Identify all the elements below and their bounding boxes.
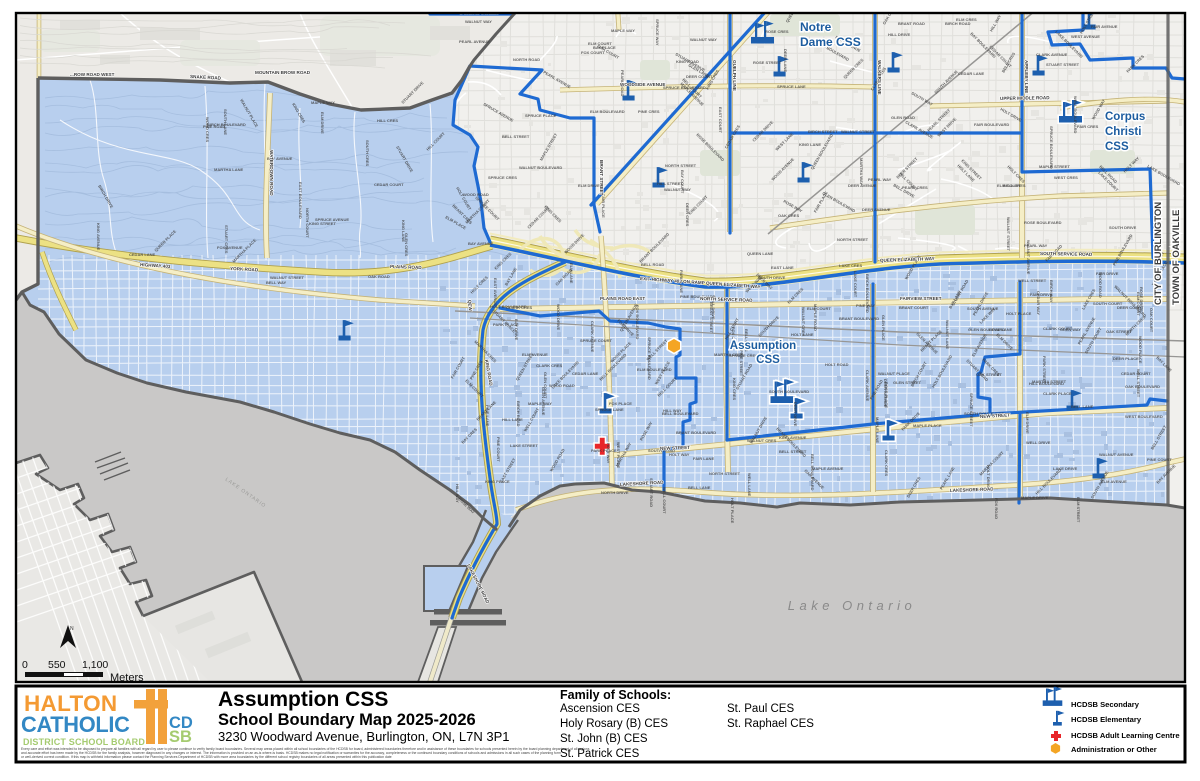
svg-text:NORTH STREET: NORTH STREET <box>837 237 869 242</box>
svg-text:St. John (B) CES: St. John (B) CES <box>560 733 648 745</box>
svg-text:HOLT PLACE: HOLT PLACE <box>730 498 735 524</box>
svg-text:EAST COURT: EAST COURT <box>718 107 723 134</box>
svg-text:TOWN OF OAKVILLE: TOWN OF OAKVILLE <box>1171 210 1182 305</box>
svg-text:ELM AVENUE: ELM AVENUE <box>522 352 548 357</box>
svg-text:NORTH COURT: NORTH COURT <box>305 208 310 238</box>
svg-text:FAIRVIEW STREET: FAIRVIEW STREET <box>900 296 942 301</box>
svg-text:Family of Schools:: Family of Schools: <box>560 688 671 702</box>
svg-text:WALNUT BOULEVARD: WALNUT BOULEVARD <box>519 165 562 170</box>
svg-text:SPRUCE WAY: SPRUCE WAY <box>655 19 660 46</box>
svg-text:NORTH ROAD: NORTH ROAD <box>513 57 540 62</box>
svg-text:HILL WAY: HILL WAY <box>663 408 682 413</box>
svg-text:NORTH STREET: NORTH STREET <box>709 471 741 476</box>
svg-text:HILL CRES: HILL CRES <box>377 118 398 123</box>
svg-text:PINE LANE: PINE LANE <box>485 405 490 427</box>
svg-text:BELL STREET: BELL STREET <box>779 449 807 454</box>
svg-text:OAK CRES: OAK CRES <box>778 213 799 218</box>
svg-text:WOODSIDE AVENUE: WOODSIDE AVENUE <box>620 82 665 87</box>
svg-text:ELM CRES: ELM CRES <box>956 17 977 22</box>
svg-text:N: N <box>70 626 74 632</box>
svg-text:BELL WAY: BELL WAY <box>266 280 287 285</box>
svg-text:Notre: Notre <box>800 20 832 34</box>
svg-text:ELM DRIVE: ELM DRIVE <box>320 112 325 134</box>
svg-text:CLARK CRES: CLARK CRES <box>884 450 889 477</box>
svg-text:CSS: CSS <box>1105 141 1129 153</box>
svg-text:CATHOLIC: CATHOLIC <box>21 712 130 737</box>
svg-text:St. Paul CES: St. Paul CES <box>727 703 794 715</box>
svg-text:WELL STREET: WELL STREET <box>1018 278 1047 283</box>
svg-text:ELM DRIVE: ELM DRIVE <box>1025 412 1030 434</box>
svg-text:WALNUT STREET: WALNUT STREET <box>841 129 876 134</box>
svg-text:WALNUT WAY: WALNUT WAY <box>465 19 492 24</box>
svg-text:WOOD DRIVE: WOOD DRIVE <box>556 304 561 331</box>
svg-text:School Boundary Map 2025-2026: School Boundary Map 2025-2026 <box>218 711 476 729</box>
svg-text:FOX COURT: FOX COURT <box>581 50 605 55</box>
svg-text:PINE COURT: PINE COURT <box>496 437 501 462</box>
svg-text:FAIR PLACE: FAIR PLACE <box>601 194 606 218</box>
svg-text:BIRCH ROAD: BIRCH ROAD <box>516 401 521 427</box>
svg-text:CEDAR LANE: CEDAR LANE <box>129 252 156 257</box>
svg-text:WALNUT LANE: WALNUT LANE <box>945 320 950 349</box>
svg-text:KING LANE: KING LANE <box>799 142 821 147</box>
svg-text:DEER AVENUE: DEER AVENUE <box>848 183 877 188</box>
svg-text:St. Patrick CES: St. Patrick CES <box>560 748 640 760</box>
svg-text:MOUNTAIN BROW ROAD: MOUNTAIN BROW ROAD <box>255 70 311 75</box>
svg-text:WOOD CRES: WOOD CRES <box>205 117 210 142</box>
svg-text:NEW STREET: NEW STREET <box>660 445 690 451</box>
svg-text:MAPLE DRIVE: MAPLE DRIVE <box>1021 495 1049 500</box>
svg-text:HILL STREET: HILL STREET <box>657 181 683 186</box>
svg-text:Assumption CSS: Assumption CSS <box>218 688 388 711</box>
svg-text:GLEN PLACE: GLEN PLACE <box>881 315 886 341</box>
svg-text:Assumption: Assumption <box>730 340 796 352</box>
svg-text:Ascension CES: Ascension CES <box>560 703 640 715</box>
svg-text:LAKE DRIVE: LAKE DRIVE <box>1053 466 1078 471</box>
svg-text:EAST BOULEVARD: EAST BOULEVARD <box>298 182 303 219</box>
svg-text:HOLT PLACE: HOLT PLACE <box>1006 311 1032 316</box>
svg-text:NORTH STREET: NORTH STREET <box>665 163 697 168</box>
svg-text:PINE COURT: PINE COURT <box>1147 457 1172 462</box>
svg-text:FAIR BOULEVARD: FAIR BOULEVARD <box>974 122 1009 127</box>
svg-text:HOLT WAY: HOLT WAY <box>606 443 611 464</box>
svg-text:PINE CRES: PINE CRES <box>638 109 660 114</box>
svg-text:DEER LANE: DEER LANE <box>783 49 788 72</box>
svg-text:WALNUT AVENUE: WALNUT AVENUE <box>1026 240 1031 275</box>
svg-text:WELL LANE: WELL LANE <box>747 473 752 497</box>
svg-text:KING LANE: KING LANE <box>401 220 406 242</box>
svg-text:WALNUT WAY: WALNUT WAY <box>664 187 691 192</box>
svg-text:ELM BOULEVARD: ELM BOULEVARD <box>590 109 625 114</box>
svg-text:SOUTH BOULEVARD: SOUTH BOULEVARD <box>769 389 809 394</box>
svg-text:ELM DRIVE: ELM DRIVE <box>578 183 600 188</box>
svg-text:SB: SB <box>169 728 192 746</box>
svg-text:SPRUCE PLACE: SPRUCE PLACE <box>525 113 557 118</box>
svg-text:FAIR LANE: FAIR LANE <box>693 456 714 461</box>
svg-text:SPRUCE AVENUE: SPRUCE AVENUE <box>315 217 349 222</box>
svg-text:SPRUCE BOULEVARD: SPRUCE BOULEVARD <box>647 337 652 380</box>
svg-text:EAST AVENUE: EAST AVENUE <box>493 278 498 306</box>
svg-text:CEDAR LANE: CEDAR LANE <box>958 71 985 76</box>
svg-text:BAY AVENUE: BAY AVENUE <box>468 241 494 246</box>
svg-text:WALKERS LINE: WALKERS LINE <box>877 60 882 95</box>
svg-text:WATERDOWN ROAD: WATERDOWN ROAD <box>269 150 274 196</box>
svg-text:FAIR AVENUE: FAIR AVENUE <box>1091 24 1118 29</box>
svg-text:ROSE PLACE: ROSE PLACE <box>884 382 889 408</box>
svg-text:...ROW ROAD WEST: ...ROW ROAD WEST <box>70 72 115 77</box>
svg-text:STUART CRES: STUART CRES <box>224 225 229 254</box>
svg-text:DEER CRES: DEER CRES <box>685 203 690 227</box>
svg-text:SPRUCE COURT: SPRUCE COURT <box>580 338 613 343</box>
svg-text:Christi: Christi <box>1105 126 1141 138</box>
svg-text:LAKE COURT: LAKE COURT <box>853 271 858 298</box>
svg-text:NORTH DRIVE: NORTH DRIVE <box>601 490 629 495</box>
svg-text:ROSE LANE: ROSE LANE <box>989 327 1013 332</box>
svg-text:ROSE STREET: ROSE STREET <box>753 60 782 65</box>
svg-text:WALNUT STREET: WALNUT STREET <box>1006 217 1011 252</box>
svg-text:WOOD PLACE: WOOD PLACE <box>1138 336 1143 364</box>
svg-text:UPPER MIDDLE ROAD: UPPER MIDDLE ROAD <box>1000 95 1050 101</box>
svg-text:MAPLE PLACE: MAPLE PLACE <box>913 423 942 428</box>
svg-text:Dame CSS: Dame CSS <box>800 35 861 49</box>
svg-text:KING AVENUE: KING AVENUE <box>96 223 101 251</box>
svg-text:MAPLE WAY: MAPLE WAY <box>611 28 635 33</box>
svg-text:Corpus: Corpus <box>1105 111 1145 123</box>
svg-text:St. Raphael CES: St. Raphael CES <box>727 718 814 730</box>
svg-text:or well-derived correct condit: or well-derived correct condition. If th… <box>21 755 392 759</box>
svg-text:ELM COURT: ELM COURT <box>1136 292 1141 316</box>
svg-text:SPRUCE CRES: SPRUCE CRES <box>488 175 517 180</box>
svg-text:WELL DRIVE: WELL DRIVE <box>1026 440 1051 445</box>
svg-text:SOUTH CRES: SOUTH CRES <box>365 140 370 167</box>
svg-text:Administration or Other: Administration or Other <box>1071 745 1157 754</box>
svg-text:PEARL AVENUE: PEARL AVENUE <box>459 39 490 44</box>
svg-text:MAPLE WAY: MAPLE WAY <box>311 100 335 105</box>
svg-text:WALNUT AVENUE: WALNUT AVENUE <box>1099 452 1134 457</box>
svg-text:ROSE BOULEVARD: ROSE BOULEVARD <box>1024 220 1062 225</box>
svg-text:MARTHA STREET: MARTHA STREET <box>1032 379 1067 384</box>
svg-text:BIRCH WAY: BIRCH WAY <box>1049 280 1054 303</box>
svg-text:CLARK AVENUE: CLARK AVENUE <box>590 321 595 353</box>
svg-text:HOLT ROAD: HOLT ROAD <box>825 362 849 367</box>
svg-text:LAKE STREET: LAKE STREET <box>510 443 538 448</box>
svg-text:550: 550 <box>48 659 66 671</box>
svg-text:CEDAR LANE: CEDAR LANE <box>572 371 599 376</box>
svg-text:0: 0 <box>22 659 28 671</box>
svg-text:SOUTH DRIVE: SOUTH DRIVE <box>1109 225 1137 230</box>
svg-text:ELM STREET: ELM STREET <box>1076 497 1081 523</box>
svg-text:HCDSB Secondary: HCDSB Secondary <box>1071 700 1140 709</box>
svg-text:DISTRICT SCHOOL BOARD: DISTRICT SCHOOL BOARD <box>23 737 145 747</box>
svg-text:WOOD ROAD: WOOD ROAD <box>549 383 575 388</box>
svg-text:PARK PLACE: PARK PLACE <box>591 448 617 453</box>
svg-text:OAK ROAD: OAK ROAD <box>368 274 390 279</box>
svg-text:ELM LANE: ELM LANE <box>569 263 574 284</box>
svg-text:PEARL WAY: PEARL WAY <box>868 177 892 182</box>
svg-text:HILL LANE: HILL LANE <box>502 417 523 422</box>
svg-text:WEST AVENUE: WEST AVENUE <box>1071 34 1100 39</box>
svg-text:CITY OF BURLINGTON: CITY OF BURLINGTON <box>1153 202 1164 305</box>
svg-text:SOUTH LANE: SOUTH LANE <box>223 109 228 135</box>
svg-text:MAPLE AVENUE: MAPLE AVENUE <box>812 466 844 471</box>
svg-text:DEER PLACE: DEER PLACE <box>1113 356 1139 361</box>
svg-text:OAK COURT: OAK COURT <box>1149 308 1154 333</box>
svg-text:QEW: QEW <box>467 300 473 312</box>
svg-text:OAK BOULEVARD: OAK BOULEVARD <box>1125 384 1160 389</box>
svg-text:WOOD ROAD: WOOD ROAD <box>1098 272 1103 298</box>
svg-text:STUART STREET: STUART STREET <box>1046 62 1080 67</box>
svg-text:GUELPH LINE: GUELPH LINE <box>732 60 737 91</box>
svg-text:SOUTH SERVICE ROAD: SOUTH SERVICE ROAD <box>1040 251 1093 257</box>
svg-text:HILL DRIVE: HILL DRIVE <box>888 32 910 37</box>
svg-text:HILL WAY: HILL WAY <box>455 484 460 503</box>
svg-text:BELL ROAD: BELL ROAD <box>641 262 664 267</box>
svg-text:WALNUT PLACE: WALNUT PLACE <box>878 371 910 376</box>
svg-text:Holy Rosary (B) CES: Holy Rosary (B) CES <box>560 718 668 730</box>
svg-text:PINE STREET: PINE STREET <box>739 350 744 377</box>
svg-text:GLEN ROAD: GLEN ROAD <box>891 115 915 120</box>
svg-text:BIRCH STREET: BIRCH STREET <box>808 129 838 134</box>
svg-text:WALNUT STREET: WALNUT STREET <box>270 275 305 280</box>
svg-text:BRANT ROAD: BRANT ROAD <box>898 21 925 26</box>
svg-text:BRANT COURT: BRANT COURT <box>899 305 929 310</box>
svg-text:WALNUT CRES: WALNUT CRES <box>801 307 806 337</box>
svg-text:DEER AVENUE: DEER AVENUE <box>862 207 891 212</box>
svg-text:FAIR CRES: FAIR CRES <box>1077 124 1099 129</box>
svg-text:WELL COURT: WELL COURT <box>662 487 667 514</box>
svg-text:ROSE CRES: ROSE CRES <box>765 29 789 34</box>
svg-text:SOUTH AVENUE: SOUTH AVENUE <box>967 306 999 311</box>
svg-text:PINE WAY: PINE WAY <box>856 303 876 308</box>
svg-text:MAPLE WAY: MAPLE WAY <box>528 401 552 406</box>
svg-text:APPLEBY LINE: APPLEBY LINE <box>1024 60 1029 93</box>
svg-text:CSS: CSS <box>756 354 780 366</box>
svg-text:MAPLE STREET: MAPLE STREET <box>1039 164 1070 169</box>
svg-text:SPRUCE LANE: SPRUCE LANE <box>777 84 806 89</box>
svg-text:CLARK PLACE: CLARK PLACE <box>1043 391 1072 396</box>
svg-text:WEST CRES: WEST CRES <box>1054 175 1078 180</box>
svg-text:CLARK CRES: CLARK CRES <box>536 363 563 368</box>
svg-text:HCDSB Elementary: HCDSB Elementary <box>1071 715 1142 724</box>
svg-text:WELL STREET: WELL STREET <box>1136 369 1141 398</box>
svg-text:BELL LANE: BELL LANE <box>1071 404 1094 409</box>
svg-text:QUEEN LANE: QUEEN LANE <box>747 251 774 256</box>
svg-text:FOX PLACE: FOX PLACE <box>609 401 632 406</box>
svg-text:WALNUT WAY: WALNUT WAY <box>690 37 717 42</box>
svg-text:CLARK CRES: CLARK CRES <box>506 305 533 310</box>
svg-text:MAPLE LANE: MAPLE LANE <box>875 417 880 443</box>
svg-text:BRANT BOULEVARD: BRANT BOULEVARD <box>676 430 716 435</box>
svg-text:BRANT BOULEVARD: BRANT BOULEVARD <box>839 316 879 321</box>
svg-text:MARTHA WAY: MARTHA WAY <box>859 158 864 185</box>
svg-text:ELM COURT: ELM COURT <box>997 183 1021 188</box>
svg-text:CEDAR COURT: CEDAR COURT <box>374 182 404 187</box>
svg-text:FOX ROAD: FOX ROAD <box>994 498 999 519</box>
svg-text:MAPLE ROAD: MAPLE ROAD <box>813 304 818 331</box>
svg-text:CLARK COURT: CLARK COURT <box>1043 326 1073 331</box>
svg-text:SPRUCE BOULEVARD: SPRUCE BOULEVARD <box>1049 126 1054 169</box>
svg-text:CLARK AVENUE: CLARK AVENUE <box>1036 52 1068 57</box>
svg-text:GLEN COURT: GLEN COURT <box>543 372 548 399</box>
svg-text:3230 Woodward Avenue, Burlingt: 3230 Woodward Avenue, Burlington, ON, L7… <box>218 729 509 744</box>
svg-text:PLAINS ROAD EAST: PLAINS ROAD EAST <box>600 296 645 301</box>
svg-text:LAKE CRES: LAKE CRES <box>839 263 862 268</box>
svg-text:DEER DRIVE: DEER DRIVE <box>793 402 798 427</box>
svg-text:SPRUCE LANE: SPRUCE LANE <box>595 407 624 412</box>
svg-text:BRANT STREET: BRANT STREET <box>599 160 604 196</box>
svg-text:ELM COURT: ELM COURT <box>807 306 831 311</box>
svg-text:BELL LANE: BELL LANE <box>688 485 711 490</box>
svg-text:BELL STREET: BELL STREET <box>502 134 530 139</box>
svg-text:MARTHA LANE: MARTHA LANE <box>214 167 244 172</box>
svg-text:HCDSB Adult Learning Centre: HCDSB Adult Learning Centre <box>1071 731 1180 740</box>
svg-text:BAY DRIVE: BAY DRIVE <box>514 319 519 341</box>
svg-text:Lake Ontario: Lake Ontario <box>788 598 916 613</box>
svg-text:KING ROAD: KING ROAD <box>676 59 699 64</box>
svg-text:1,100: 1,100 <box>82 659 108 671</box>
svg-text:EAST LANE: EAST LANE <box>771 265 794 270</box>
svg-text:WEST BOULEVARD: WEST BOULEVARD <box>1125 414 1163 419</box>
